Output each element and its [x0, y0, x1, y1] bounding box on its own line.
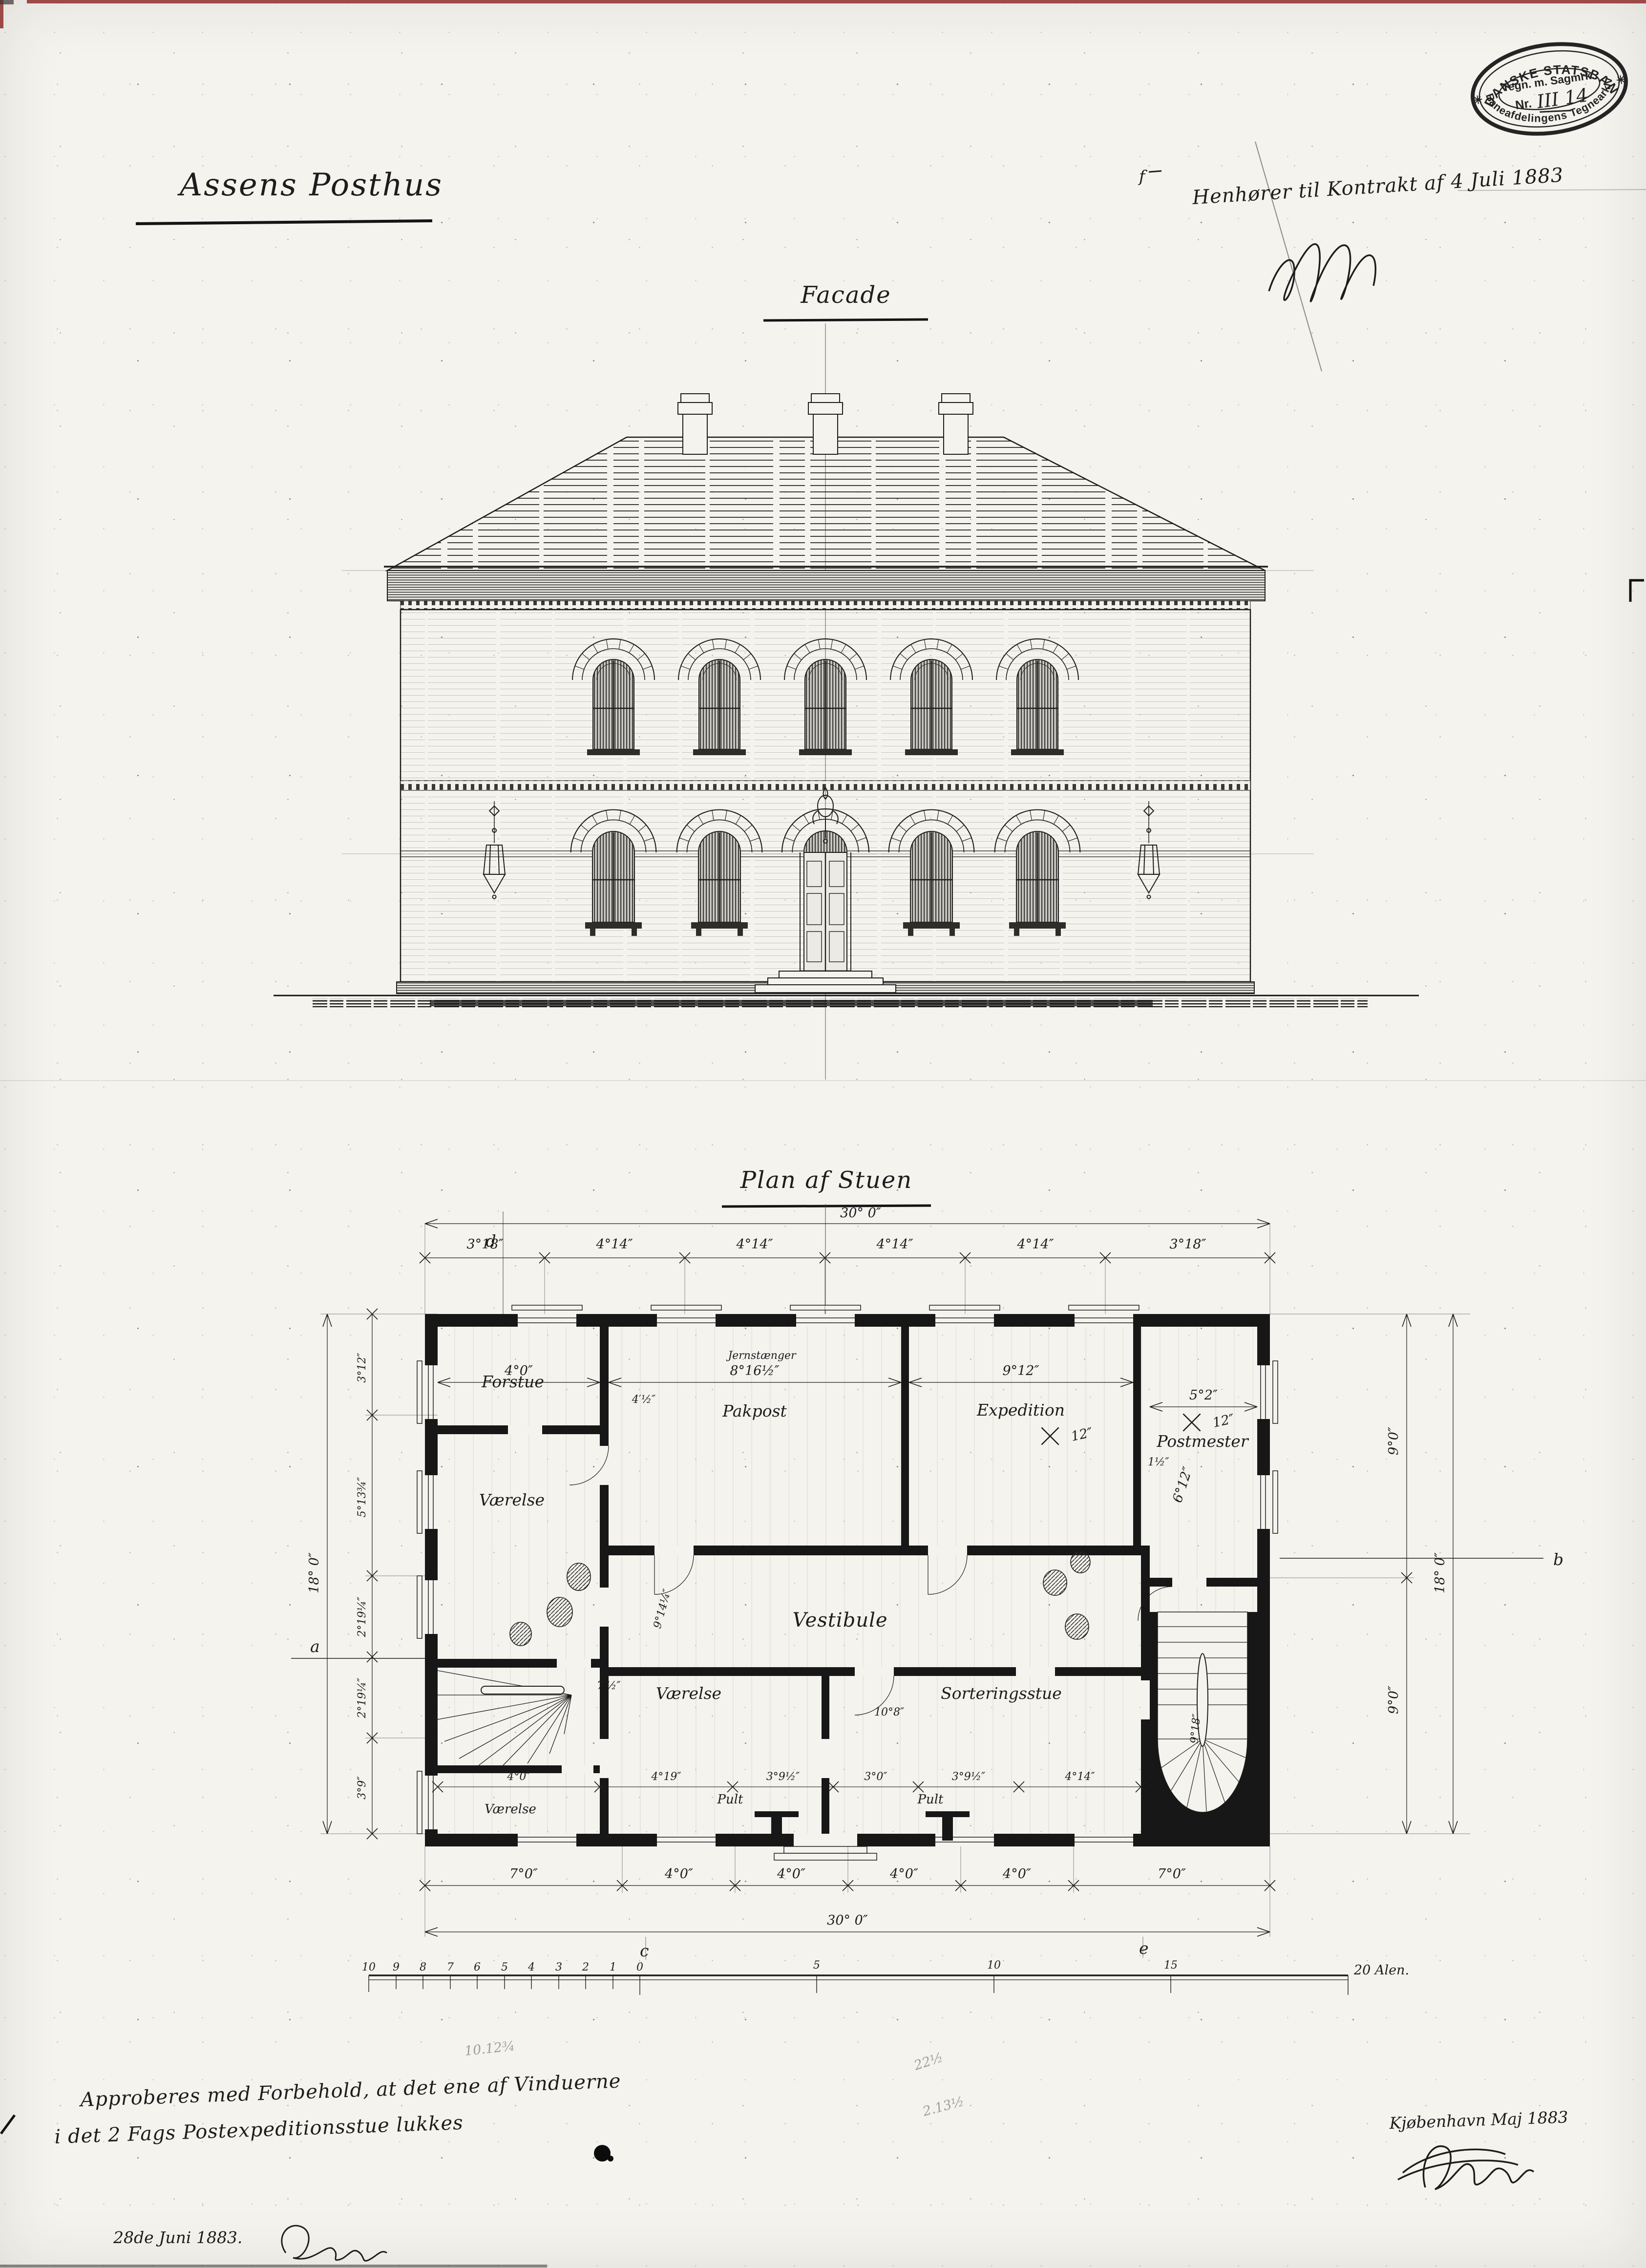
svg-text:4°14″: 4°14″ [1016, 1237, 1054, 1252]
svg-text:18° 0″: 18° 0″ [1433, 1552, 1448, 1593]
svg-text:15: 15 [1164, 1959, 1178, 1971]
title-underline [136, 221, 432, 224]
page-title: Assens Posthus [177, 167, 443, 203]
room-expedition: Expedition [976, 1400, 1065, 1420]
facade-underline [763, 319, 928, 320]
svg-text:1: 1 [610, 1961, 616, 1973]
room-pakpost: Pakpost [722, 1401, 787, 1420]
pencil-note-2: 2.13½ [921, 2094, 966, 2120]
approval-date: 28de Juni 1883. [113, 2228, 242, 2247]
header: Assens Posthus Henhører til Kontrakt af … [136, 142, 1564, 371]
svg-text:10: 10 [987, 1959, 1001, 1971]
svg-text:6: 6 [474, 1961, 481, 1973]
facade-section: Facade [274, 281, 1419, 1080]
svg-text:18° 0″: 18° 0″ [307, 1552, 322, 1593]
contract-note: Henhører til Kontrakt af 4 Juli 1883 [1191, 164, 1564, 209]
svg-text:3°0″: 3°0″ [864, 1771, 887, 1783]
svg-text:2°19¼″: 2°19¼″ [356, 1677, 368, 1718]
room-vaerelse-3: Værelse [485, 1802, 536, 1817]
marker-a: a [310, 1637, 320, 1656]
svg-text:7°0″: 7°0″ [1158, 1866, 1186, 1882]
svg-text:3°9½″: 3°9½″ [766, 1771, 800, 1783]
svg-text:9°12″: 9°12″ [1002, 1363, 1039, 1378]
svg-text:5: 5 [501, 1961, 508, 1973]
svg-text:4°0″: 4°0″ [889, 1866, 918, 1882]
room-vaerelse-1: Værelse [479, 1490, 545, 1509]
plan-scale-bar: 10 9 8 7 6 5 4 3 2 1 0 5 10 15 20 Alen. [362, 1959, 1409, 1995]
room-pult-1: Pult [717, 1792, 743, 1807]
plan-underline [722, 1206, 931, 1207]
svg-text:20 Alen.: 20 Alen. [1353, 1963, 1409, 1978]
svg-text:5°2″: 5°2″ [1189, 1388, 1218, 1403]
svg-text:5°13¾″: 5°13¾″ [356, 1477, 368, 1517]
window-note: Jernstænger [726, 1350, 797, 1362]
marker-b: b [1553, 1550, 1563, 1569]
svg-text:1½″: 1½″ [1148, 1456, 1169, 1468]
plan-section: Plan af Stuen [291, 1166, 1563, 1995]
svg-text:8°16½″: 8°16½″ [730, 1363, 779, 1378]
marker-c: c [640, 1941, 649, 1960]
svg-text:4°14″: 4°14″ [876, 1237, 913, 1252]
svg-text:4°0″: 4°0″ [777, 1866, 805, 1882]
svg-text:10°8″: 10°8″ [874, 1706, 905, 1718]
stamp-arc-top: DE DANSKE STATSBANER [0, 0, 1623, 321]
svg-text:9°0″: 9°0″ [1386, 1427, 1401, 1455]
approval-line-1: Approberes med Forbehold, at det ene af … [78, 2070, 621, 2111]
marker-d: d [485, 1231, 496, 1251]
svg-text:4′½″: 4′½″ [632, 1394, 656, 1406]
signature-flourish [1269, 244, 1375, 301]
svg-text:3°9½″: 3°9½″ [952, 1771, 986, 1783]
svg-text:4: 4 [528, 1961, 535, 1973]
svg-text:4°0″: 4°0″ [664, 1866, 693, 1882]
room-sorteringsstue: Sorteringsstue [941, 1684, 1062, 1703]
svg-text:0: 0 [636, 1961, 643, 1973]
plan-dims-right: 9°0″ 9°0″ 18° 0″ b [1270, 1314, 1563, 1834]
svg-text:3°18″: 3°18″ [1169, 1237, 1206, 1252]
room-postmester: Postmester [1156, 1432, 1249, 1451]
svg-text:4°14″: 4°14″ [595, 1237, 633, 1252]
city-date: Kjøbenhavn Maj 1883 [1389, 2107, 1568, 2133]
signature-flourish-right [1398, 2146, 1534, 2189]
svg-text:2°19¼″: 2°19¼″ [356, 1596, 368, 1637]
svg-text:9°0″: 9°0″ [1386, 1686, 1401, 1714]
marker-e: e [1139, 1939, 1149, 1958]
svg-text:3°9″: 3°9″ [356, 1776, 368, 1800]
svg-text:4°19″: 4°19″ [651, 1771, 681, 1783]
facade-roof [387, 394, 1265, 571]
facade-label: Facade [800, 281, 891, 309]
signature-flourish-left [282, 2226, 387, 2261]
svg-text:7: 7 [447, 1961, 454, 1973]
plan-oval-stair [1150, 1612, 1257, 1834]
svg-text:4°0″: 4°0″ [1002, 1866, 1031, 1882]
drawing-sheet: DE DANSKE STATSBANER Baneafdelingens Teg… [0, 0, 1646, 2268]
svg-text:2: 2 [582, 1961, 589, 1973]
room-pult-2: Pult [917, 1792, 944, 1807]
svg-text:7°0″: 7°0″ [509, 1866, 538, 1882]
svg-text:10: 10 [362, 1961, 376, 1973]
pencil-stroke [1255, 142, 1322, 371]
room-vaerelse-2: Værelse [656, 1684, 721, 1703]
svg-text:3°12″: 3°12″ [356, 1353, 368, 1383]
stamp-nr-label: Nr. [1515, 96, 1533, 112]
svg-text:4°0″: 4°0″ [506, 1771, 530, 1783]
svg-text:8: 8 [420, 1961, 426, 1973]
footer: Approberes med Forbehold, at det ene af … [54, 2038, 1568, 2261]
plan-label: Plan af Stuen [740, 1166, 912, 1194]
pencil-note-3: 10.12¾ [464, 2038, 515, 2059]
stamp-star-right: ✳ [1615, 73, 1626, 86]
approval-line-2: i det 2 Fags Postexpeditionsstue lukkes [54, 2112, 464, 2148]
drawing-canvas: DE DANSKE STATSBANER Baneafdelingens Teg… [0, 0, 1646, 2268]
svg-text:5: 5 [813, 1959, 820, 1971]
plan-dims-bottom: 7°0″ 4°0″ 4°0″ 4°0″ 4°0″ 7°0″ 30° 0″ c e [420, 1846, 1275, 1960]
svg-text:4°14″: 4°14″ [1064, 1771, 1095, 1783]
svg-text:30° 0″: 30° 0″ [827, 1913, 868, 1928]
plan-dims-left: 3°12″ 5°13¾″ 2°19¼″ 2°19¼″ 3°9″ 18° 0″ a [291, 1309, 438, 1839]
sheet-edge-marks [0, 0, 1646, 2268]
svg-text:7′½″: 7′½″ [597, 1680, 621, 1692]
svg-text:9: 9 [393, 1961, 400, 1973]
svg-text:4°14″: 4°14″ [736, 1237, 773, 1252]
plan-dims-top: 3°18″ 4°14″ 4°14″ 4°14″ 4°14″ 3°18″ 30° … [420, 1206, 1275, 1314]
svg-text:3°18″: 3°18″ [466, 1237, 503, 1252]
note-mark: f [1138, 167, 1148, 186]
svg-text:3: 3 [555, 1961, 562, 1973]
svg-text:4°0″: 4°0″ [504, 1363, 533, 1378]
svg-text:30° 0″: 30° 0″ [840, 1206, 881, 1221]
room-vestibule: Vestibule [792, 1609, 887, 1632]
stamp-star-left: ✳ [1472, 93, 1483, 106]
pencil-note-1: 22½ [912, 2050, 945, 2073]
